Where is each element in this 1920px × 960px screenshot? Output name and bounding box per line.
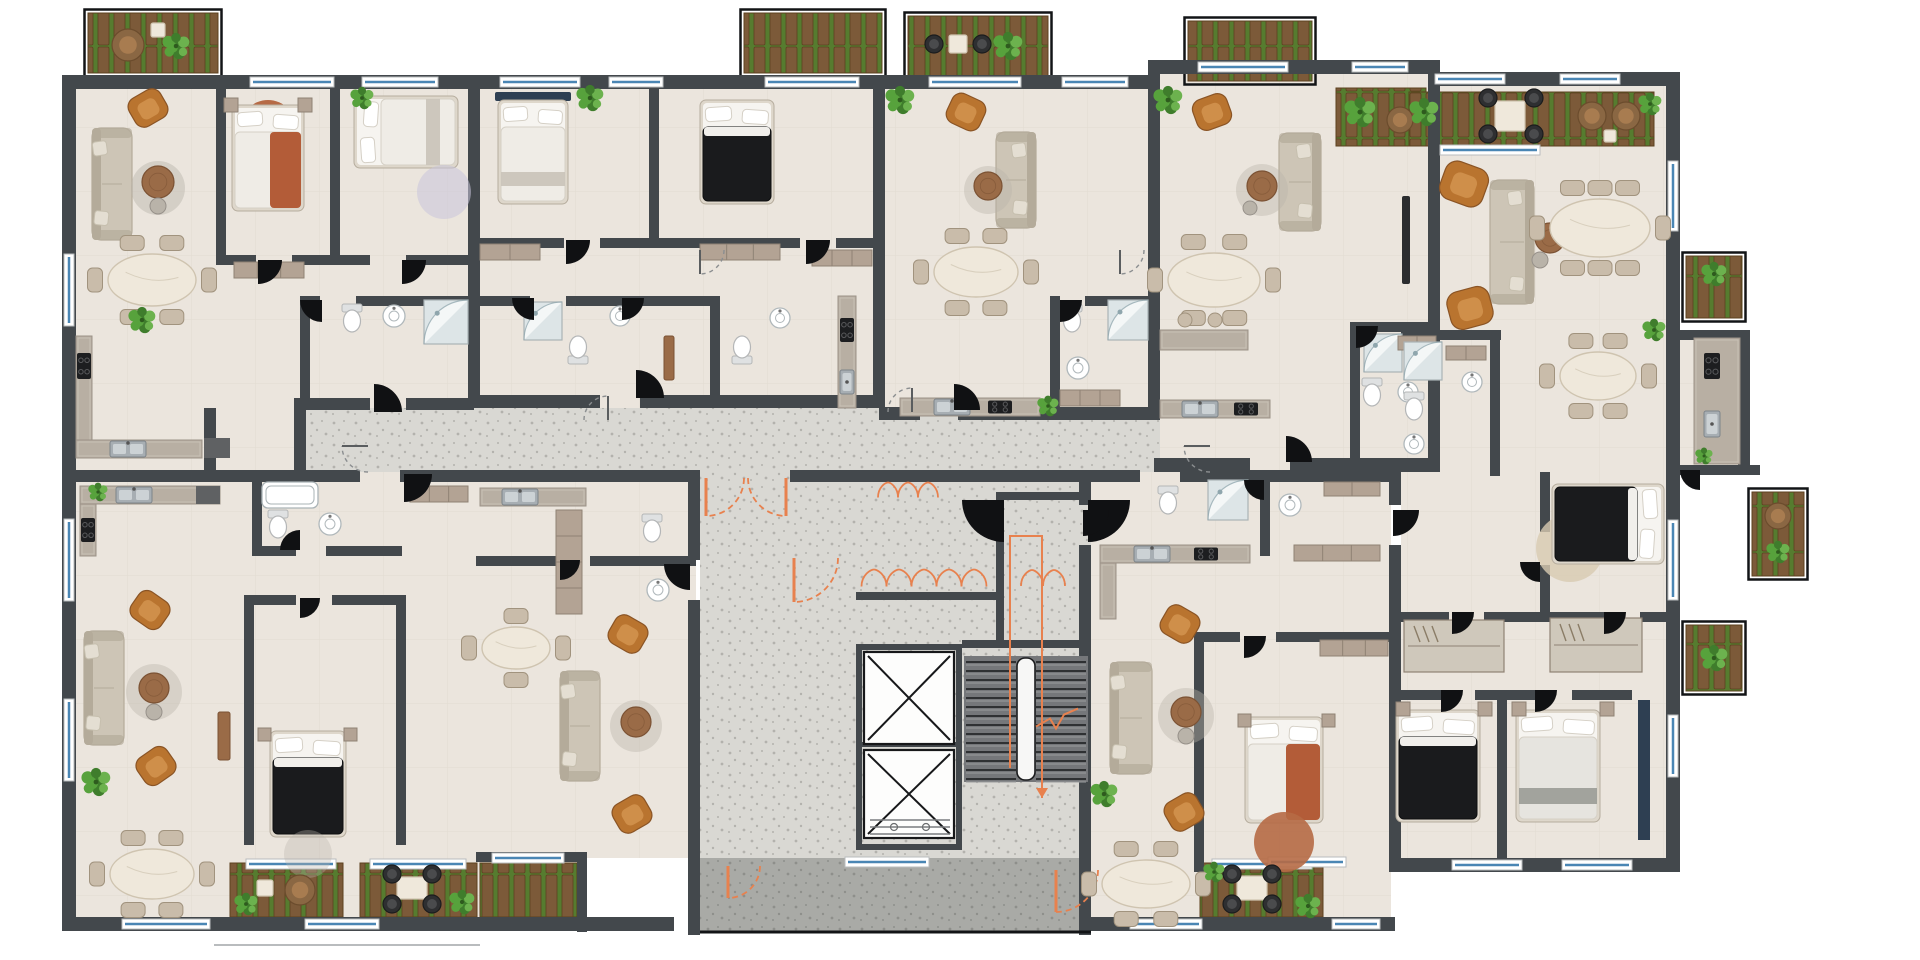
dchair xyxy=(973,35,991,53)
hob xyxy=(1234,403,1258,416)
dtable xyxy=(151,23,165,37)
shw xyxy=(424,300,468,344)
sofa xyxy=(92,128,132,240)
win xyxy=(1198,62,1288,72)
dchair xyxy=(1263,895,1281,913)
wrd xyxy=(1550,618,1642,672)
plant xyxy=(128,307,155,333)
plant xyxy=(1344,97,1375,127)
dchair xyxy=(925,35,943,53)
bed xyxy=(1552,484,1664,564)
wall xyxy=(1497,690,1507,858)
cof xyxy=(142,166,174,198)
wall xyxy=(836,238,885,248)
dchair xyxy=(1223,895,1241,913)
vty xyxy=(383,305,405,327)
cof xyxy=(1171,697,1201,727)
sidet xyxy=(1178,728,1194,744)
bed xyxy=(270,731,346,837)
wall xyxy=(1148,60,1160,408)
plant xyxy=(1203,862,1224,883)
win xyxy=(370,859,466,869)
win xyxy=(1562,860,1632,870)
wall xyxy=(332,595,406,605)
cnt xyxy=(1160,330,1248,350)
plant xyxy=(1638,93,1661,116)
hob xyxy=(840,318,854,342)
dchair xyxy=(423,895,441,913)
sink xyxy=(840,370,854,394)
dchair xyxy=(1387,107,1413,133)
hob xyxy=(988,401,1012,414)
wall xyxy=(326,546,402,556)
wall xyxy=(216,89,226,255)
wall xyxy=(1154,458,1250,472)
cof xyxy=(139,673,169,703)
sink2 xyxy=(110,441,146,457)
dchair xyxy=(423,865,441,883)
cab xyxy=(1512,702,1526,716)
wall xyxy=(1490,336,1500,476)
wall xyxy=(688,600,700,935)
cof xyxy=(621,707,651,737)
bed xyxy=(1516,710,1600,822)
win xyxy=(929,77,1021,87)
wall xyxy=(1475,690,1535,700)
plant xyxy=(1153,86,1182,114)
wall xyxy=(244,595,254,845)
dchair xyxy=(1525,125,1543,143)
wall xyxy=(856,844,962,850)
plant xyxy=(1695,448,1712,465)
plant xyxy=(81,768,110,796)
wall xyxy=(300,306,310,398)
plant xyxy=(1766,541,1789,564)
plant xyxy=(449,890,474,914)
dchair xyxy=(1223,895,1241,913)
hob xyxy=(1704,353,1720,379)
win xyxy=(1668,520,1678,600)
dchair xyxy=(1387,107,1413,133)
cnt xyxy=(1100,563,1116,619)
shw xyxy=(1404,342,1442,380)
plant xyxy=(162,33,189,59)
plant xyxy=(1700,645,1727,671)
shw xyxy=(1108,300,1148,340)
sidet xyxy=(150,198,166,214)
win xyxy=(64,699,74,781)
wc xyxy=(568,336,588,364)
dchair xyxy=(1479,89,1497,107)
rug xyxy=(417,165,471,219)
sidet xyxy=(1532,252,1548,268)
win xyxy=(305,919,379,929)
dtable xyxy=(1495,101,1525,131)
win xyxy=(1560,74,1620,84)
cab xyxy=(1396,702,1410,716)
wall xyxy=(1640,612,1680,622)
cof xyxy=(142,166,174,198)
bed xyxy=(495,92,571,204)
bed xyxy=(1516,710,1600,822)
wall xyxy=(710,296,720,396)
wall xyxy=(649,89,659,239)
balcony-g xyxy=(480,863,577,917)
hob xyxy=(988,401,1012,414)
vty xyxy=(1067,357,1089,379)
dchair xyxy=(1479,89,1497,107)
elevator-1 xyxy=(864,652,954,744)
plant xyxy=(1701,262,1726,286)
cof xyxy=(139,673,169,703)
balcony-e2 xyxy=(1749,489,1808,580)
sofa xyxy=(1490,180,1534,304)
sink2 xyxy=(502,489,538,505)
vty xyxy=(1279,494,1301,516)
bed xyxy=(1552,484,1664,564)
plant xyxy=(1295,894,1320,918)
sink2 xyxy=(1182,401,1218,417)
dchair xyxy=(112,29,144,61)
wall xyxy=(252,480,262,556)
wc xyxy=(642,514,662,542)
sink2 xyxy=(116,487,152,503)
stool xyxy=(1208,313,1222,327)
dchair xyxy=(285,875,315,905)
floor-plan xyxy=(0,0,1920,960)
plant xyxy=(88,483,107,502)
win xyxy=(362,77,438,87)
plant xyxy=(885,86,914,114)
win xyxy=(1452,860,1522,870)
vty xyxy=(1279,494,1301,516)
bed xyxy=(1396,710,1480,822)
wall xyxy=(406,398,474,410)
sink2 xyxy=(502,489,538,505)
dtable xyxy=(1237,876,1267,900)
plant xyxy=(1409,98,1438,126)
dtable xyxy=(1604,130,1616,142)
wall xyxy=(474,395,600,408)
win xyxy=(500,77,580,87)
win xyxy=(492,853,564,863)
sink2 xyxy=(116,487,152,503)
sofa xyxy=(84,631,124,745)
dchair xyxy=(1263,865,1281,883)
dtable xyxy=(1495,101,1525,131)
vty xyxy=(1462,372,1482,392)
tall xyxy=(196,486,220,504)
wall xyxy=(1290,458,1440,472)
shw xyxy=(1208,480,1248,520)
bed xyxy=(232,105,304,211)
win xyxy=(1352,62,1408,72)
wc xyxy=(732,336,752,364)
wall xyxy=(856,592,996,600)
win xyxy=(765,77,859,87)
plant xyxy=(1701,262,1726,286)
hob xyxy=(1704,353,1720,379)
plant xyxy=(1409,98,1438,126)
vty xyxy=(319,513,341,535)
dtable xyxy=(949,35,967,53)
wall xyxy=(476,556,556,566)
dchair xyxy=(1223,865,1241,883)
win xyxy=(64,254,74,326)
tall xyxy=(204,438,230,458)
cof xyxy=(1247,171,1277,201)
win xyxy=(1062,77,1128,87)
wc xyxy=(568,336,588,364)
dtable xyxy=(257,880,273,896)
cab xyxy=(1294,545,1380,561)
bed xyxy=(354,96,458,168)
cof xyxy=(974,172,1002,200)
hob xyxy=(1234,403,1258,416)
dchair xyxy=(383,895,401,913)
win xyxy=(1440,145,1540,155)
floor-plan-canvas xyxy=(0,0,1920,960)
dtable xyxy=(949,35,967,53)
dchair xyxy=(1525,89,1543,107)
plant xyxy=(993,32,1022,60)
plant xyxy=(128,307,155,333)
cab xyxy=(1060,390,1120,406)
wc xyxy=(1362,378,1382,406)
dtable xyxy=(397,877,427,899)
cof xyxy=(1247,171,1277,201)
vty xyxy=(1404,434,1424,454)
bed xyxy=(1245,717,1323,823)
wc xyxy=(1362,378,1382,406)
plant xyxy=(1344,97,1375,127)
bed xyxy=(270,731,346,837)
cof xyxy=(621,707,651,737)
wall xyxy=(856,644,962,650)
wc xyxy=(1404,392,1424,420)
plant xyxy=(162,33,189,59)
dchair xyxy=(383,865,401,883)
cab xyxy=(1322,714,1335,727)
plant xyxy=(1090,781,1117,807)
dchair xyxy=(1223,865,1241,883)
win xyxy=(64,519,74,601)
wc xyxy=(732,336,752,364)
rug xyxy=(1254,812,1314,872)
dchair xyxy=(1263,865,1281,883)
wc xyxy=(1158,486,1178,514)
dchair xyxy=(1525,89,1543,107)
wc xyxy=(268,510,288,538)
wall xyxy=(962,640,1091,648)
bed xyxy=(700,100,774,204)
cab xyxy=(1238,714,1251,727)
plant xyxy=(234,893,257,916)
dchair xyxy=(1612,102,1640,130)
sidet xyxy=(1243,201,1257,215)
dchair xyxy=(973,35,991,53)
plant xyxy=(1153,86,1182,114)
sink xyxy=(1704,411,1720,437)
dchair xyxy=(1578,102,1606,130)
vty xyxy=(383,305,405,327)
plant xyxy=(1700,645,1727,671)
win xyxy=(122,919,210,929)
plant xyxy=(993,32,1022,60)
plant xyxy=(1295,894,1320,918)
vty xyxy=(770,308,790,328)
cnt xyxy=(1100,545,1250,563)
wall xyxy=(300,398,370,410)
plant xyxy=(1695,448,1712,465)
vty xyxy=(647,579,669,601)
win xyxy=(1435,74,1505,84)
wall xyxy=(400,470,700,482)
wall xyxy=(1401,690,1441,700)
wall xyxy=(1194,632,1204,872)
plant xyxy=(449,890,474,914)
sofa xyxy=(84,631,124,745)
plant xyxy=(1642,319,1665,342)
dchair xyxy=(383,895,401,913)
dchair xyxy=(1612,102,1640,130)
wc xyxy=(342,304,362,332)
elevator-2 xyxy=(864,750,954,838)
stool xyxy=(1178,313,1192,327)
bed xyxy=(232,105,304,211)
cof xyxy=(1171,697,1201,727)
sink xyxy=(1704,411,1720,437)
dchair xyxy=(1765,503,1791,529)
plant xyxy=(350,87,373,110)
bed xyxy=(495,92,571,204)
plant xyxy=(885,86,914,114)
win xyxy=(1668,715,1678,777)
cab xyxy=(1320,640,1388,656)
win xyxy=(609,77,663,87)
sink2 xyxy=(1134,546,1170,562)
cab xyxy=(700,244,780,260)
vty xyxy=(770,308,790,328)
win xyxy=(250,77,334,87)
console xyxy=(664,336,674,380)
cab xyxy=(258,728,271,741)
vty xyxy=(1404,434,1424,454)
hob xyxy=(81,518,95,542)
bed xyxy=(700,100,774,204)
dchair xyxy=(925,35,943,53)
sink2 xyxy=(1182,401,1218,417)
dtable xyxy=(151,23,165,37)
wall xyxy=(1572,690,1632,700)
plant xyxy=(234,893,257,916)
sofa xyxy=(1110,662,1152,774)
dtable xyxy=(257,880,273,896)
plant xyxy=(1203,862,1224,883)
wall xyxy=(1389,472,1401,505)
sofa xyxy=(560,671,600,781)
sofa xyxy=(1110,662,1152,774)
vty xyxy=(647,579,669,601)
wall xyxy=(1395,858,1680,872)
cab xyxy=(1600,702,1614,716)
bed xyxy=(1245,717,1323,823)
hob xyxy=(81,518,95,542)
sofa xyxy=(560,671,600,781)
dchair xyxy=(1479,125,1497,143)
dchair xyxy=(1525,125,1543,143)
sink2 xyxy=(110,441,146,457)
plant xyxy=(350,87,373,110)
cab xyxy=(480,244,540,260)
dchair xyxy=(1765,503,1791,529)
win xyxy=(1332,919,1380,929)
sink xyxy=(840,370,854,394)
balcony-a xyxy=(85,10,222,77)
plant xyxy=(1037,396,1058,417)
tall xyxy=(1638,700,1650,840)
balcony-b xyxy=(741,10,886,77)
wall xyxy=(996,492,1091,500)
cab xyxy=(1478,702,1492,716)
wall xyxy=(396,595,406,845)
plant xyxy=(576,85,603,111)
cab xyxy=(344,728,357,741)
wall xyxy=(62,75,76,931)
dchair xyxy=(423,865,441,883)
dchair xyxy=(1578,102,1606,130)
exit-corridor-floor xyxy=(700,858,1091,932)
cab xyxy=(298,98,312,112)
sidet xyxy=(146,704,162,720)
plant xyxy=(1037,396,1058,417)
vty xyxy=(319,513,341,535)
win xyxy=(845,857,929,867)
vty xyxy=(1462,372,1482,392)
plant xyxy=(1642,319,1665,342)
cof xyxy=(974,172,1002,200)
wc xyxy=(268,510,288,538)
plant xyxy=(1090,781,1117,807)
wall xyxy=(688,472,700,560)
wall xyxy=(577,852,587,932)
hob xyxy=(77,353,91,379)
dchair xyxy=(1479,125,1497,143)
sink2 xyxy=(1134,546,1170,562)
console xyxy=(218,712,230,760)
wall xyxy=(330,89,340,255)
cab xyxy=(224,98,238,112)
plant xyxy=(576,85,603,111)
sofa xyxy=(1490,180,1534,304)
tub xyxy=(262,482,318,508)
cab xyxy=(1446,346,1486,360)
bed xyxy=(1396,710,1480,822)
doorb xyxy=(1680,470,1700,490)
cab xyxy=(1324,482,1380,496)
dtable xyxy=(1237,876,1267,900)
wc xyxy=(642,514,662,542)
tv xyxy=(1402,196,1410,284)
dchair xyxy=(383,865,401,883)
plant xyxy=(81,768,110,796)
sofa xyxy=(92,128,132,240)
dchair xyxy=(1263,895,1281,913)
dtable xyxy=(397,877,427,899)
wc xyxy=(1158,486,1178,514)
balcony-d xyxy=(1185,18,1316,85)
hob xyxy=(1194,548,1218,561)
